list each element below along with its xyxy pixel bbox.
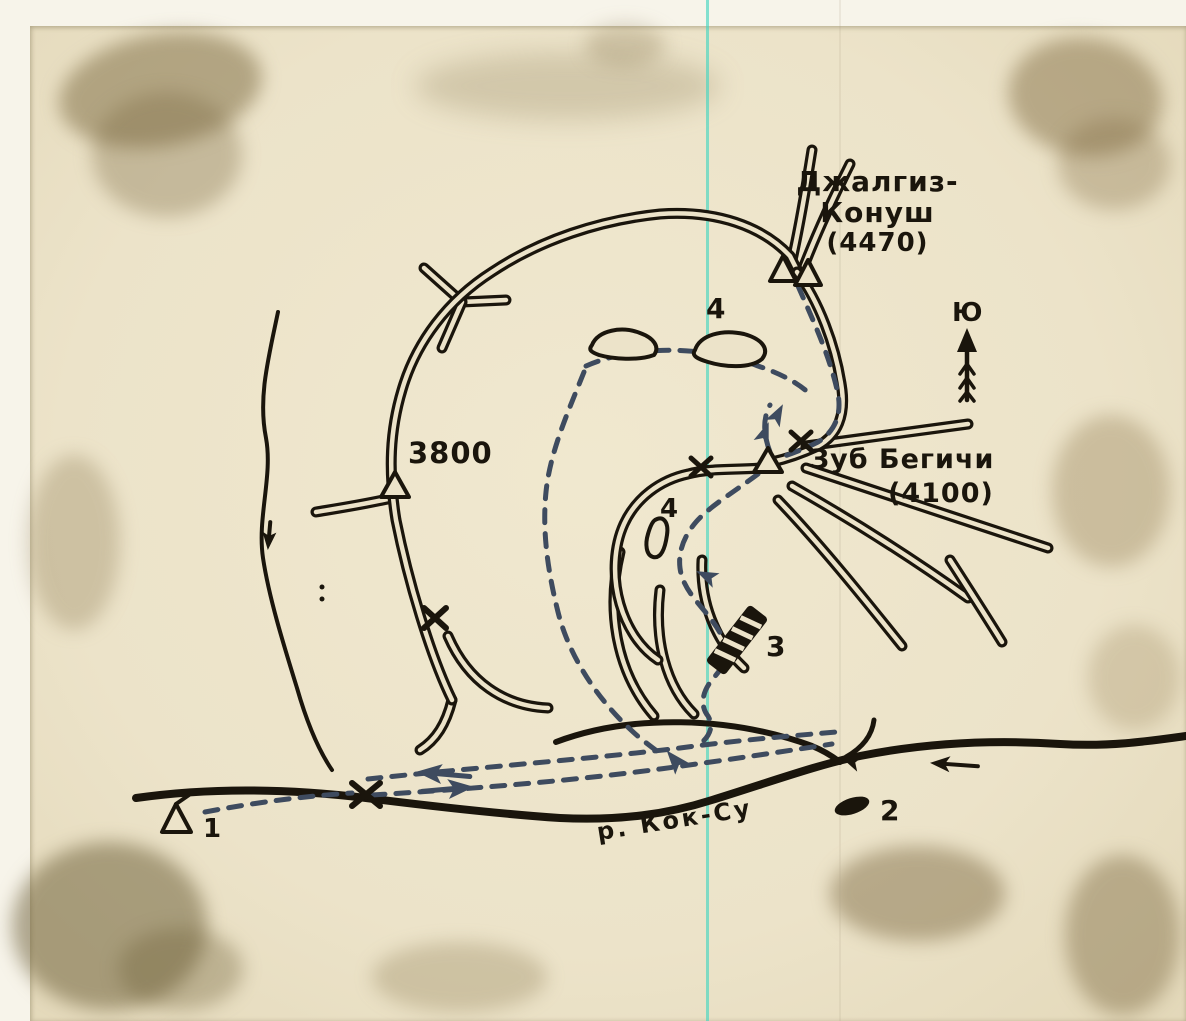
river-bank-line — [556, 722, 840, 762]
marker-4-lower-label: 4 — [660, 494, 679, 524]
peak1-name-line1: Джалгиз- — [770, 166, 985, 197]
river-flow-arrow — [929, 755, 978, 774]
route-arrow-west — [415, 762, 471, 787]
marker-1-label: 1 — [203, 814, 222, 844]
route-arrow-descent — [838, 720, 874, 772]
route-arrow-east — [421, 777, 475, 801]
peak-label-dzhalgiz-konush: Джалгиз- Конуш (4470) — [770, 166, 985, 258]
south-arrow-icon — [957, 328, 977, 401]
peak-label-zub-begichi: Зуб Бегичи — [810, 444, 994, 475]
compass-south-label: Ю — [952, 298, 984, 328]
spot-height-label: 3800 — [408, 436, 493, 470]
marker-3-label: 3 — [766, 630, 786, 663]
peak2-elevation: (4100) — [888, 478, 994, 509]
marker-2-label: 2 — [880, 794, 900, 827]
site-2-oval-icon — [832, 793, 871, 819]
peak1-name-line2: Конуш — [770, 197, 985, 228]
scanned-sketch-map: Джалгиз- Конуш (4470) Зуб Бегичи (4100) … — [0, 0, 1186, 1021]
peak1-elevation: (4470) — [770, 229, 985, 258]
marker-4-upper-label: 4 — [706, 292, 726, 325]
camp-tent-icon — [162, 795, 191, 832]
map-drawing — [0, 0, 1186, 1021]
